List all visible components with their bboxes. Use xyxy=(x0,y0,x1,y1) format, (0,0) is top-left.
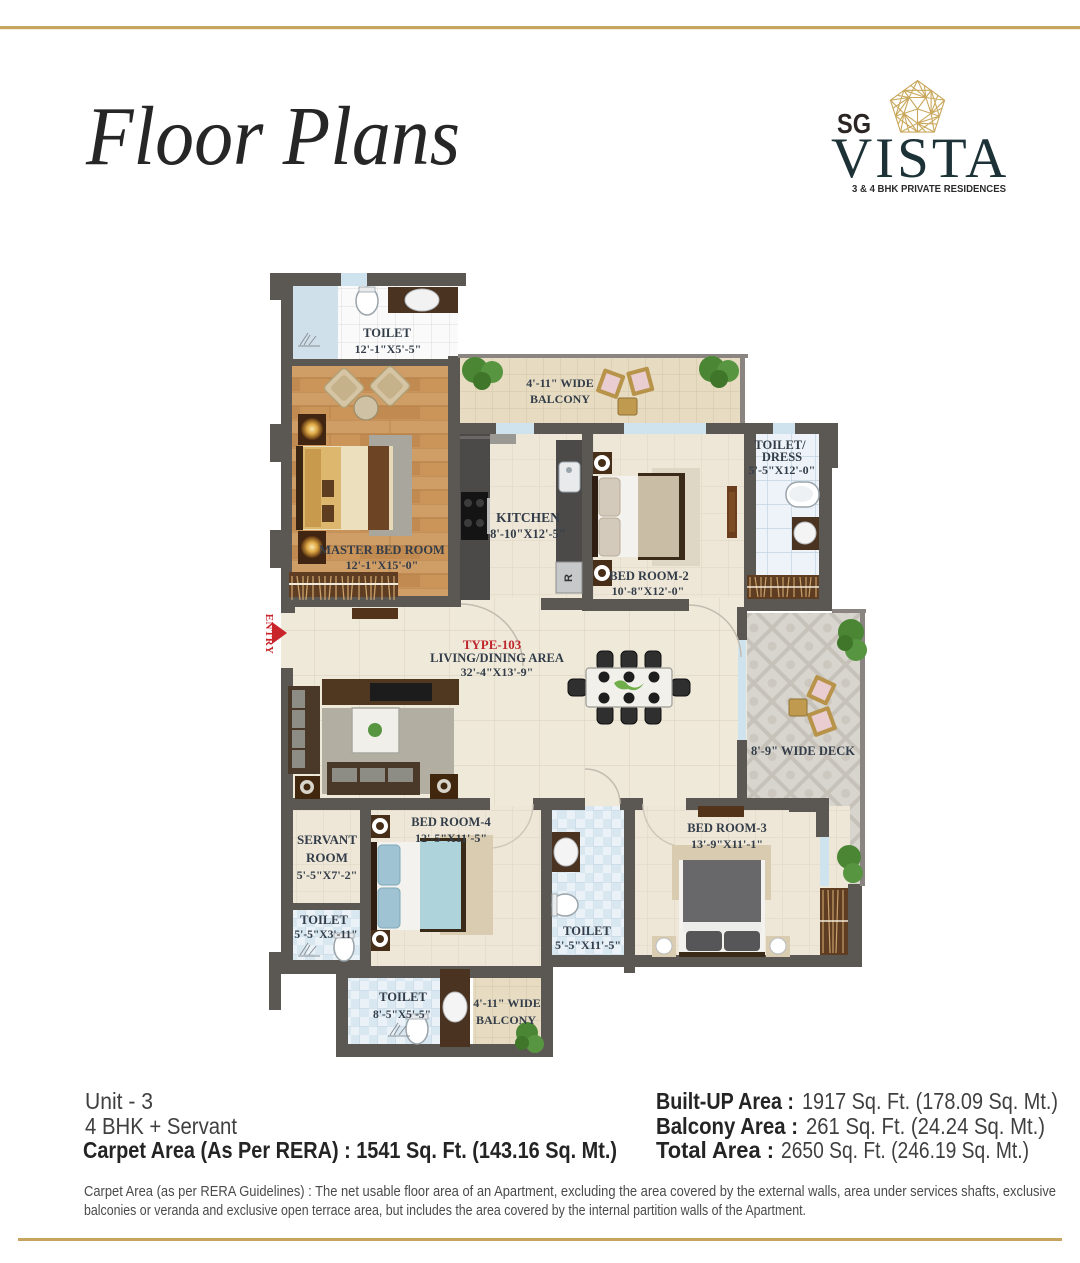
svg-text:8'-9" WIDE DECK: 8'-9" WIDE DECK xyxy=(751,744,855,758)
svg-text:1917 Sq. Ft. (178.09 Sq. Mt.): 1917 Sq. Ft. (178.09 Sq. Mt.) xyxy=(802,1088,1058,1114)
svg-text:Balcony Area :: Balcony Area : xyxy=(656,1113,798,1139)
svg-text:TOILET: TOILET xyxy=(300,913,348,927)
svg-text:R: R xyxy=(563,574,575,582)
svg-text:TOILET: TOILET xyxy=(563,924,611,938)
svg-text:SERVANT: SERVANT xyxy=(297,832,357,847)
svg-text:5'-5"X7'-2": 5'-5"X7'-2" xyxy=(297,868,358,882)
svg-text:4 BHK + Servant: 4 BHK + Servant xyxy=(85,1113,238,1139)
svg-text:12'-1"X15'-0": 12'-1"X15'-0" xyxy=(346,558,419,572)
svg-text:balconies or veranda and exclu: balconies or veranda and exclusive open … xyxy=(84,1203,806,1219)
svg-text:BED ROOM-2: BED ROOM-2 xyxy=(609,569,689,583)
svg-text:5'-5"X3'-11": 5'-5"X3'-11" xyxy=(294,929,357,941)
svg-text:LIVING/DINING AREA: LIVING/DINING AREA xyxy=(430,651,564,665)
svg-text:BED ROOM-3: BED ROOM-3 xyxy=(687,821,767,835)
svg-text:5'-5"X12'-0": 5'-5"X12'-0" xyxy=(749,463,816,477)
svg-text:MASTER BED ROOM: MASTER BED ROOM xyxy=(319,543,445,557)
svg-text:Carpet Area (as per RERA Guide: Carpet Area (as per RERA Guidelines) : T… xyxy=(84,1184,1056,1200)
svg-text:BED ROOM-4: BED ROOM-4 xyxy=(411,815,491,829)
svg-text:10'-8"X12'-0": 10'-8"X12'-0" xyxy=(612,584,685,598)
svg-text:Floor Plans: Floor Plans xyxy=(85,90,460,183)
svg-text:TOILET: TOILET xyxy=(363,326,411,340)
svg-text:8'-5"X5'-5": 8'-5"X5'-5" xyxy=(373,1009,431,1021)
svg-text:KITCHEN: KITCHEN xyxy=(496,510,560,525)
svg-text:12'-1"X5'-5": 12'-1"X5'-5" xyxy=(355,342,422,356)
svg-text:8'-10"X12'-5": 8'-10"X12'-5" xyxy=(490,527,566,541)
svg-text:BALCONY: BALCONY xyxy=(476,1013,536,1027)
svg-text:32'-4"X13'-9": 32'-4"X13'-9" xyxy=(461,665,534,679)
svg-text:ENTRY: ENTRY xyxy=(263,614,275,655)
svg-text:ROOM: ROOM xyxy=(306,850,348,865)
svg-text:TYPE-103: TYPE-103 xyxy=(463,637,522,652)
svg-text:3 & 4 BHK PRIVATE RESIDENCES: 3 & 4 BHK PRIVATE RESIDENCES xyxy=(852,184,1006,195)
svg-text:Built-UP Area :: Built-UP Area : xyxy=(656,1088,794,1114)
svg-text:Unit - 3: Unit - 3 xyxy=(85,1088,153,1114)
svg-text:261 Sq. Ft. (24.24 Sq. Mt.): 261 Sq. Ft. (24.24 Sq. Mt.) xyxy=(806,1113,1045,1139)
svg-text:4'-11" WIDE: 4'-11" WIDE xyxy=(473,996,540,1010)
svg-text:4'-11" WIDE: 4'-11" WIDE xyxy=(526,376,593,390)
svg-text:BALCONY: BALCONY xyxy=(530,392,590,406)
svg-text:Carpet Area (As Per RERA) : 15: Carpet Area (As Per RERA) : 1541 Sq. Ft.… xyxy=(83,1137,617,1163)
svg-text:12'-5"X11'-5": 12'-5"X11'-5" xyxy=(415,831,487,845)
svg-text:Total Area :: Total Area : xyxy=(656,1137,774,1163)
svg-text:5'-5"X11'-5": 5'-5"X11'-5" xyxy=(555,938,621,952)
svg-text:VISTA: VISTA xyxy=(831,127,1009,190)
svg-text:TOILET: TOILET xyxy=(379,990,427,1004)
svg-text:13'-9"X11'-1": 13'-9"X11'-1" xyxy=(691,837,763,851)
svg-text:DRESS: DRESS xyxy=(762,450,802,464)
svg-text:2650 Sq. Ft. (246.19 Sq. Mt.): 2650 Sq. Ft. (246.19 Sq. Mt.) xyxy=(781,1137,1029,1163)
